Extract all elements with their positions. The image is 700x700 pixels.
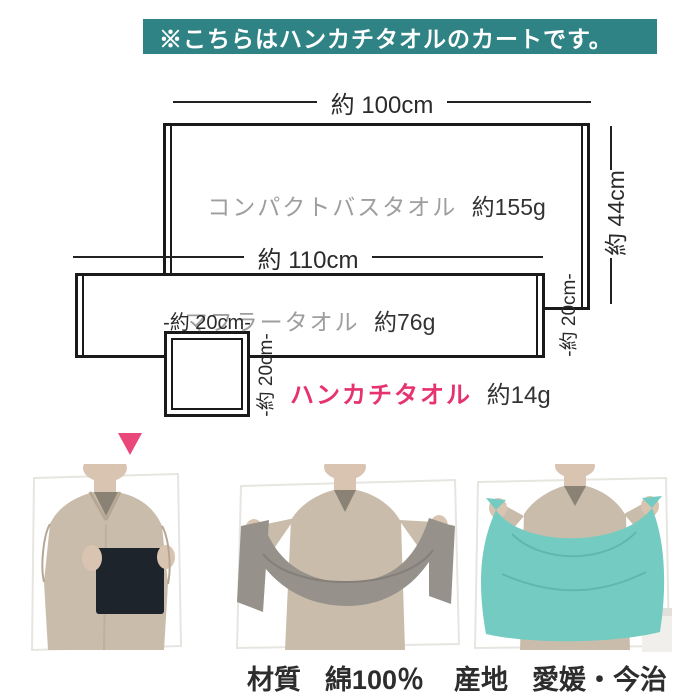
handkerchief-towel-label: ハンカチタオル 約14g [290,375,551,410]
muffler-towel-weight: 約76g [374,309,435,335]
bath-towel-weight: 約155g [472,194,546,220]
muffler-towel-height-label: -約 20cm- [554,265,578,365]
product-size-page: ※こちらはハンカチタオルのカートです。 約 100cm コンパクトバスタオル 約… [0,0,700,700]
muffler-towel-width-dimension: 約 110cm [73,245,543,269]
notice-banner: ※こちらはハンカチタオルのカートです。 [143,19,657,54]
bath-towel-width-dimension: 約 100cm [173,90,591,114]
bath-towel-name: コンパクトバスタオル [207,194,457,220]
spec-value-origin: 愛媛・今治 [532,658,667,697]
spec-label-material: 材質 [247,658,301,697]
bath-towel-height-label: 約 44cm [597,153,625,273]
photo-compact-bath-towel [472,464,672,652]
dimension-line [173,101,317,103]
notice-banner-text: ※こちらはハンカチタオルのカートです。 [159,20,613,54]
dimension-line [447,101,591,103]
handkerchief-towel-height-label: -約 20cm- [251,325,275,425]
dimension-line [73,256,244,258]
spec-value-material: 綿100％ [325,658,424,697]
handkerchief-towel-outline [164,331,250,417]
handkerchief-towel-weight: 約14g [487,382,551,409]
muffler-towel-label: マフラータオル 約76g [75,303,545,337]
dimension-line [372,256,543,258]
photo-handkerchief-towel-image [30,464,183,652]
muffler-towel-width-label: 約 110cm [258,240,359,275]
photo-compact-bath-towel-image [472,464,672,652]
photo-muffler-towel-image [233,464,462,652]
bath-towel-label: コンパクトバスタオル 約155g [163,188,590,222]
handkerchief-towel-name: ハンカチタオル [290,382,472,409]
down-arrow-icon [118,433,142,455]
photo-muffler-towel [233,464,462,652]
towel-inner-hem [171,338,243,410]
handkerchief-towel-width-label: -約 20cm- [147,306,267,335]
spec-label-origin: 産地 [454,658,508,697]
bath-towel-width-label: 約 100cm [331,85,434,120]
product-spec-footer: 材質 綿100％ 産地 愛媛・今治 [247,658,667,697]
photo-handkerchief-towel [30,464,183,652]
